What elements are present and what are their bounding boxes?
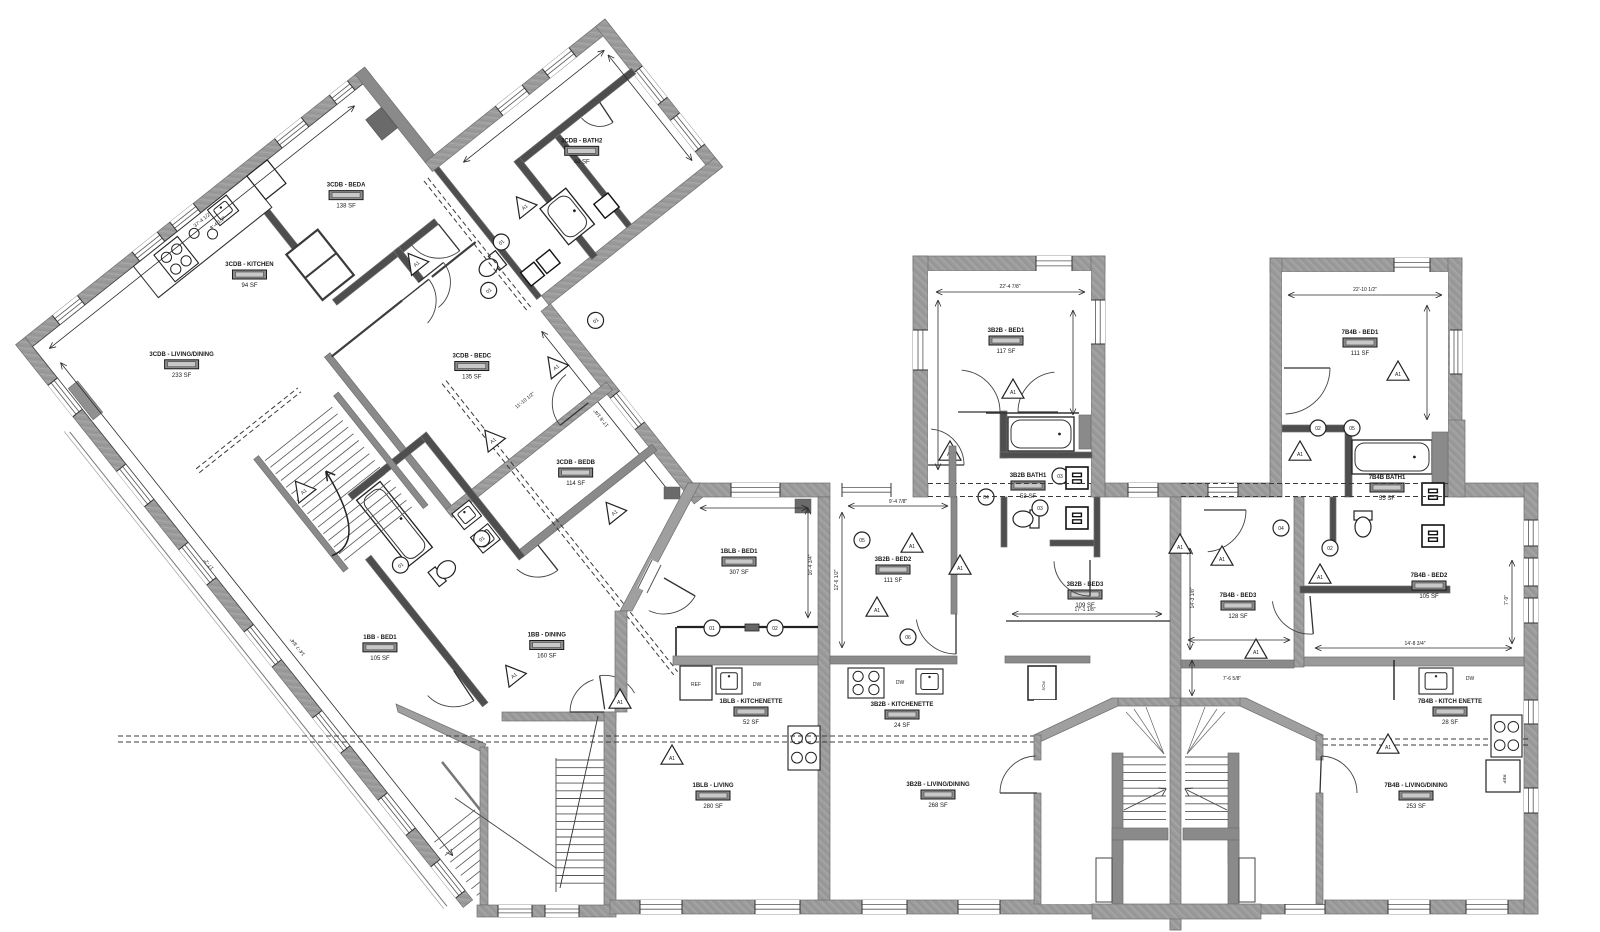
svg-text:A1: A1 bbox=[1395, 372, 1401, 378]
svg-text:7'-6 5/8": 7'-6 5/8" bbox=[1223, 676, 1242, 682]
svg-text:307 SF: 307 SF bbox=[729, 570, 749, 576]
svg-text:3B2B BATH1: 3B2B BATH1 bbox=[1010, 473, 1047, 479]
svg-text:7B4B BATH1: 7B4B BATH1 bbox=[1369, 475, 1406, 481]
svg-text:05: 05 bbox=[1349, 426, 1355, 432]
svg-text:A1: A1 bbox=[669, 756, 675, 762]
svg-text:22'-10 1/2": 22'-10 1/2" bbox=[1353, 287, 1377, 293]
svg-text:1BB - DINING: 1BB - DINING bbox=[528, 633, 567, 639]
svg-text:REF: REF bbox=[1502, 775, 1507, 784]
svg-text:FOY: FOY bbox=[1041, 681, 1046, 690]
svg-text:138 SF: 138 SF bbox=[336, 204, 356, 210]
svg-text:A1: A1 bbox=[1317, 575, 1323, 581]
svg-text:1BB - BED1: 1BB - BED1 bbox=[363, 635, 397, 641]
svg-text:A1: A1 bbox=[617, 700, 623, 706]
svg-text:14'-8 3/4": 14'-8 3/4" bbox=[1404, 641, 1425, 647]
svg-text:A1: A1 bbox=[1219, 557, 1225, 563]
svg-text:105 SF: 105 SF bbox=[370, 656, 390, 662]
svg-text:28 SF: 28 SF bbox=[1442, 720, 1458, 726]
svg-text:268 SF: 268 SF bbox=[928, 803, 948, 809]
svg-text:A1: A1 bbox=[874, 608, 880, 614]
svg-text:3CDB - BATH2: 3CDB - BATH2 bbox=[561, 138, 603, 144]
svg-text:REF: REF bbox=[691, 682, 701, 688]
svg-text:01: 01 bbox=[709, 626, 715, 632]
svg-text:117 SF: 117 SF bbox=[997, 349, 1016, 355]
svg-text:44 SF: 44 SF bbox=[574, 159, 590, 165]
svg-text:DW: DW bbox=[1466, 676, 1475, 682]
svg-text:04: 04 bbox=[1278, 526, 1284, 532]
svg-text:3CDB - BEDC: 3CDB - BEDC bbox=[452, 354, 491, 360]
svg-text:A1: A1 bbox=[957, 566, 963, 572]
svg-text:A1: A1 bbox=[1177, 545, 1183, 551]
svg-text:22'-4 7/8": 22'-4 7/8" bbox=[999, 284, 1020, 290]
svg-text:1BLB - LIVING: 1BLB - LIVING bbox=[692, 783, 733, 789]
svg-text:105 SF: 105 SF bbox=[1419, 594, 1439, 600]
svg-text:03: 03 bbox=[1037, 506, 1043, 512]
svg-text:3B2B - LIVING/DINING: 3B2B - LIVING/DINING bbox=[906, 782, 970, 788]
svg-text:3CDB - KITCHEN: 3CDB - KITCHEN bbox=[225, 262, 273, 268]
svg-text:A1: A1 bbox=[1010, 390, 1016, 396]
svg-text:135 SF: 135 SF bbox=[462, 375, 482, 381]
svg-text:A1: A1 bbox=[909, 544, 915, 550]
svg-text:7B4B - BED2: 7B4B - BED2 bbox=[1411, 573, 1448, 579]
svg-text:7B4B - KITCH ENETTE: 7B4B - KITCH ENETTE bbox=[1418, 699, 1482, 705]
svg-text:24 SF: 24 SF bbox=[894, 723, 910, 729]
svg-text:3CDB - BEDA: 3CDB - BEDA bbox=[327, 183, 366, 189]
svg-text:3B2B - BED2: 3B2B - BED2 bbox=[875, 557, 912, 563]
svg-text:02: 02 bbox=[1327, 546, 1333, 552]
svg-text:DW: DW bbox=[896, 680, 905, 686]
svg-text:7B4B - BED1: 7B4B - BED1 bbox=[1342, 330, 1379, 336]
svg-text:A1: A1 bbox=[1385, 745, 1391, 751]
svg-text:52 SF: 52 SF bbox=[743, 720, 759, 726]
svg-text:3CDB - LIVING/DINING: 3CDB - LIVING/DINING bbox=[149, 352, 214, 358]
svg-text:17'-1 1/8": 17'-1 1/8" bbox=[1074, 607, 1095, 613]
svg-text:128 SF: 128 SF bbox=[1228, 614, 1248, 620]
svg-text:3B2B - BED1: 3B2B - BED1 bbox=[988, 328, 1025, 334]
svg-text:14'-3 1/8": 14'-3 1/8" bbox=[1190, 587, 1196, 608]
svg-text:DW: DW bbox=[753, 682, 762, 688]
svg-text:A1: A1 bbox=[1253, 650, 1259, 656]
svg-text:1BLB - BED1: 1BLB - BED1 bbox=[720, 549, 758, 555]
svg-text:233 SF: 233 SF bbox=[172, 373, 192, 379]
svg-text:02: 02 bbox=[1315, 426, 1321, 432]
svg-text:9'-4 7/8": 9'-4 7/8" bbox=[889, 499, 908, 505]
svg-text:1BLB - KITCHENETTE: 1BLB - KITCHENETTE bbox=[720, 699, 783, 705]
svg-text:06: 06 bbox=[905, 635, 911, 641]
svg-text:94 SF: 94 SF bbox=[241, 283, 257, 289]
svg-text:3CDB - BEDB: 3CDB - BEDB bbox=[556, 460, 595, 466]
svg-text:160 SF: 160 SF bbox=[537, 654, 557, 660]
svg-text:111 SF: 111 SF bbox=[1351, 351, 1370, 357]
svg-text:02: 02 bbox=[772, 626, 778, 632]
svg-text:03: 03 bbox=[1057, 474, 1063, 480]
svg-text:16'-4 3/4": 16'-4 3/4" bbox=[808, 554, 814, 575]
svg-text:111 SF: 111 SF bbox=[884, 578, 903, 584]
svg-text:7B4B - LIVING/DINING: 7B4B - LIVING/DINING bbox=[1384, 783, 1448, 789]
svg-text:04: 04 bbox=[983, 495, 989, 501]
svg-text:3B2B - KITCHENETTE: 3B2B - KITCHENETTE bbox=[871, 702, 934, 708]
svg-text:7B4B - BED3: 7B4B - BED3 bbox=[1220, 593, 1257, 599]
svg-text:05: 05 bbox=[859, 538, 865, 544]
svg-text:A1: A1 bbox=[1297, 452, 1303, 458]
svg-text:3B2B - BED3: 3B2B - BED3 bbox=[1067, 582, 1104, 588]
svg-text:114 SF: 114 SF bbox=[566, 481, 585, 487]
svg-text:12'-6 1/2": 12'-6 1/2" bbox=[834, 569, 840, 590]
svg-text:7'-9": 7'-9" bbox=[1504, 595, 1510, 605]
svg-text:253 SF: 253 SF bbox=[1406, 804, 1426, 810]
svg-text:280 SF: 280 SF bbox=[703, 804, 723, 810]
